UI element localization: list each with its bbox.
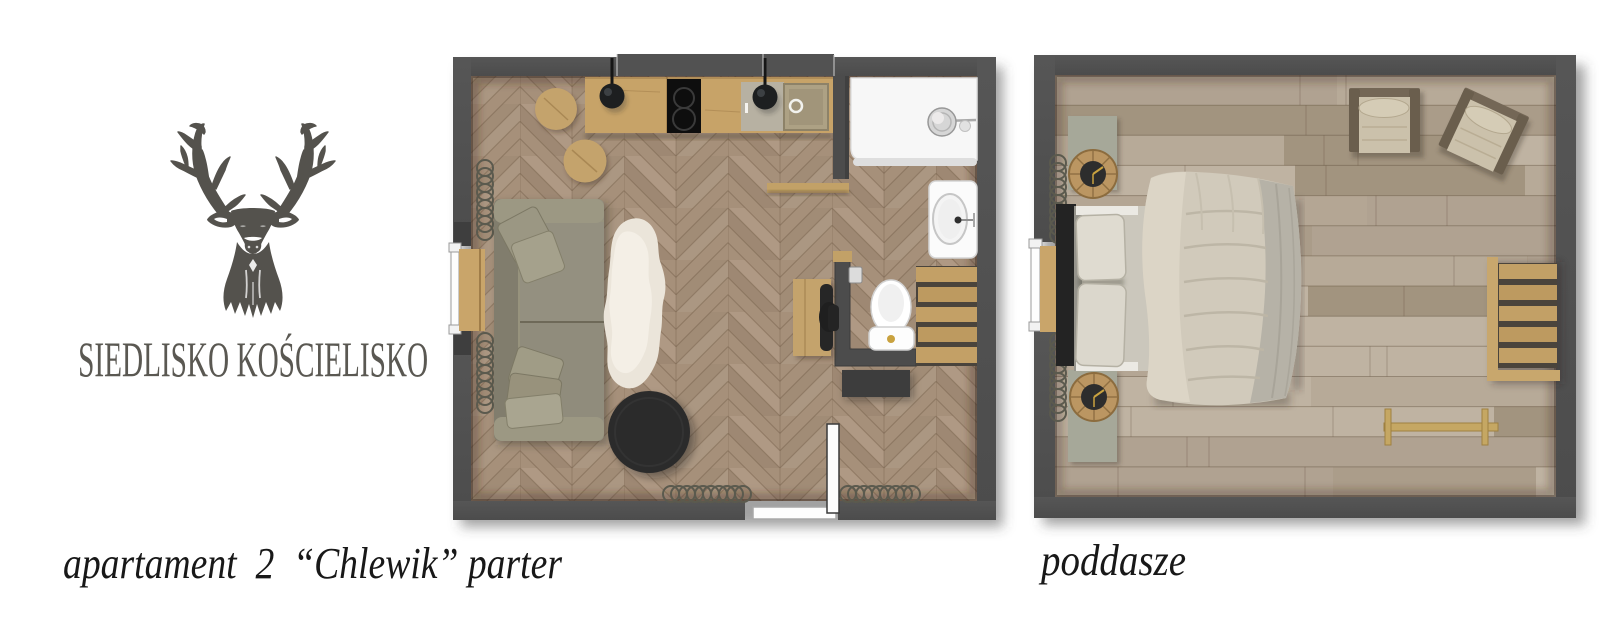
svg-text:SIEDLISKO KOŚCIELISKO: SIEDLISKO KOŚCIELISKO [78, 332, 428, 388]
svg-text:poddasze: poddasze [1038, 536, 1186, 585]
svg-text:apartament 2 “Chlewik” parte: apartament 2 “Chlewik” parter [63, 539, 563, 588]
